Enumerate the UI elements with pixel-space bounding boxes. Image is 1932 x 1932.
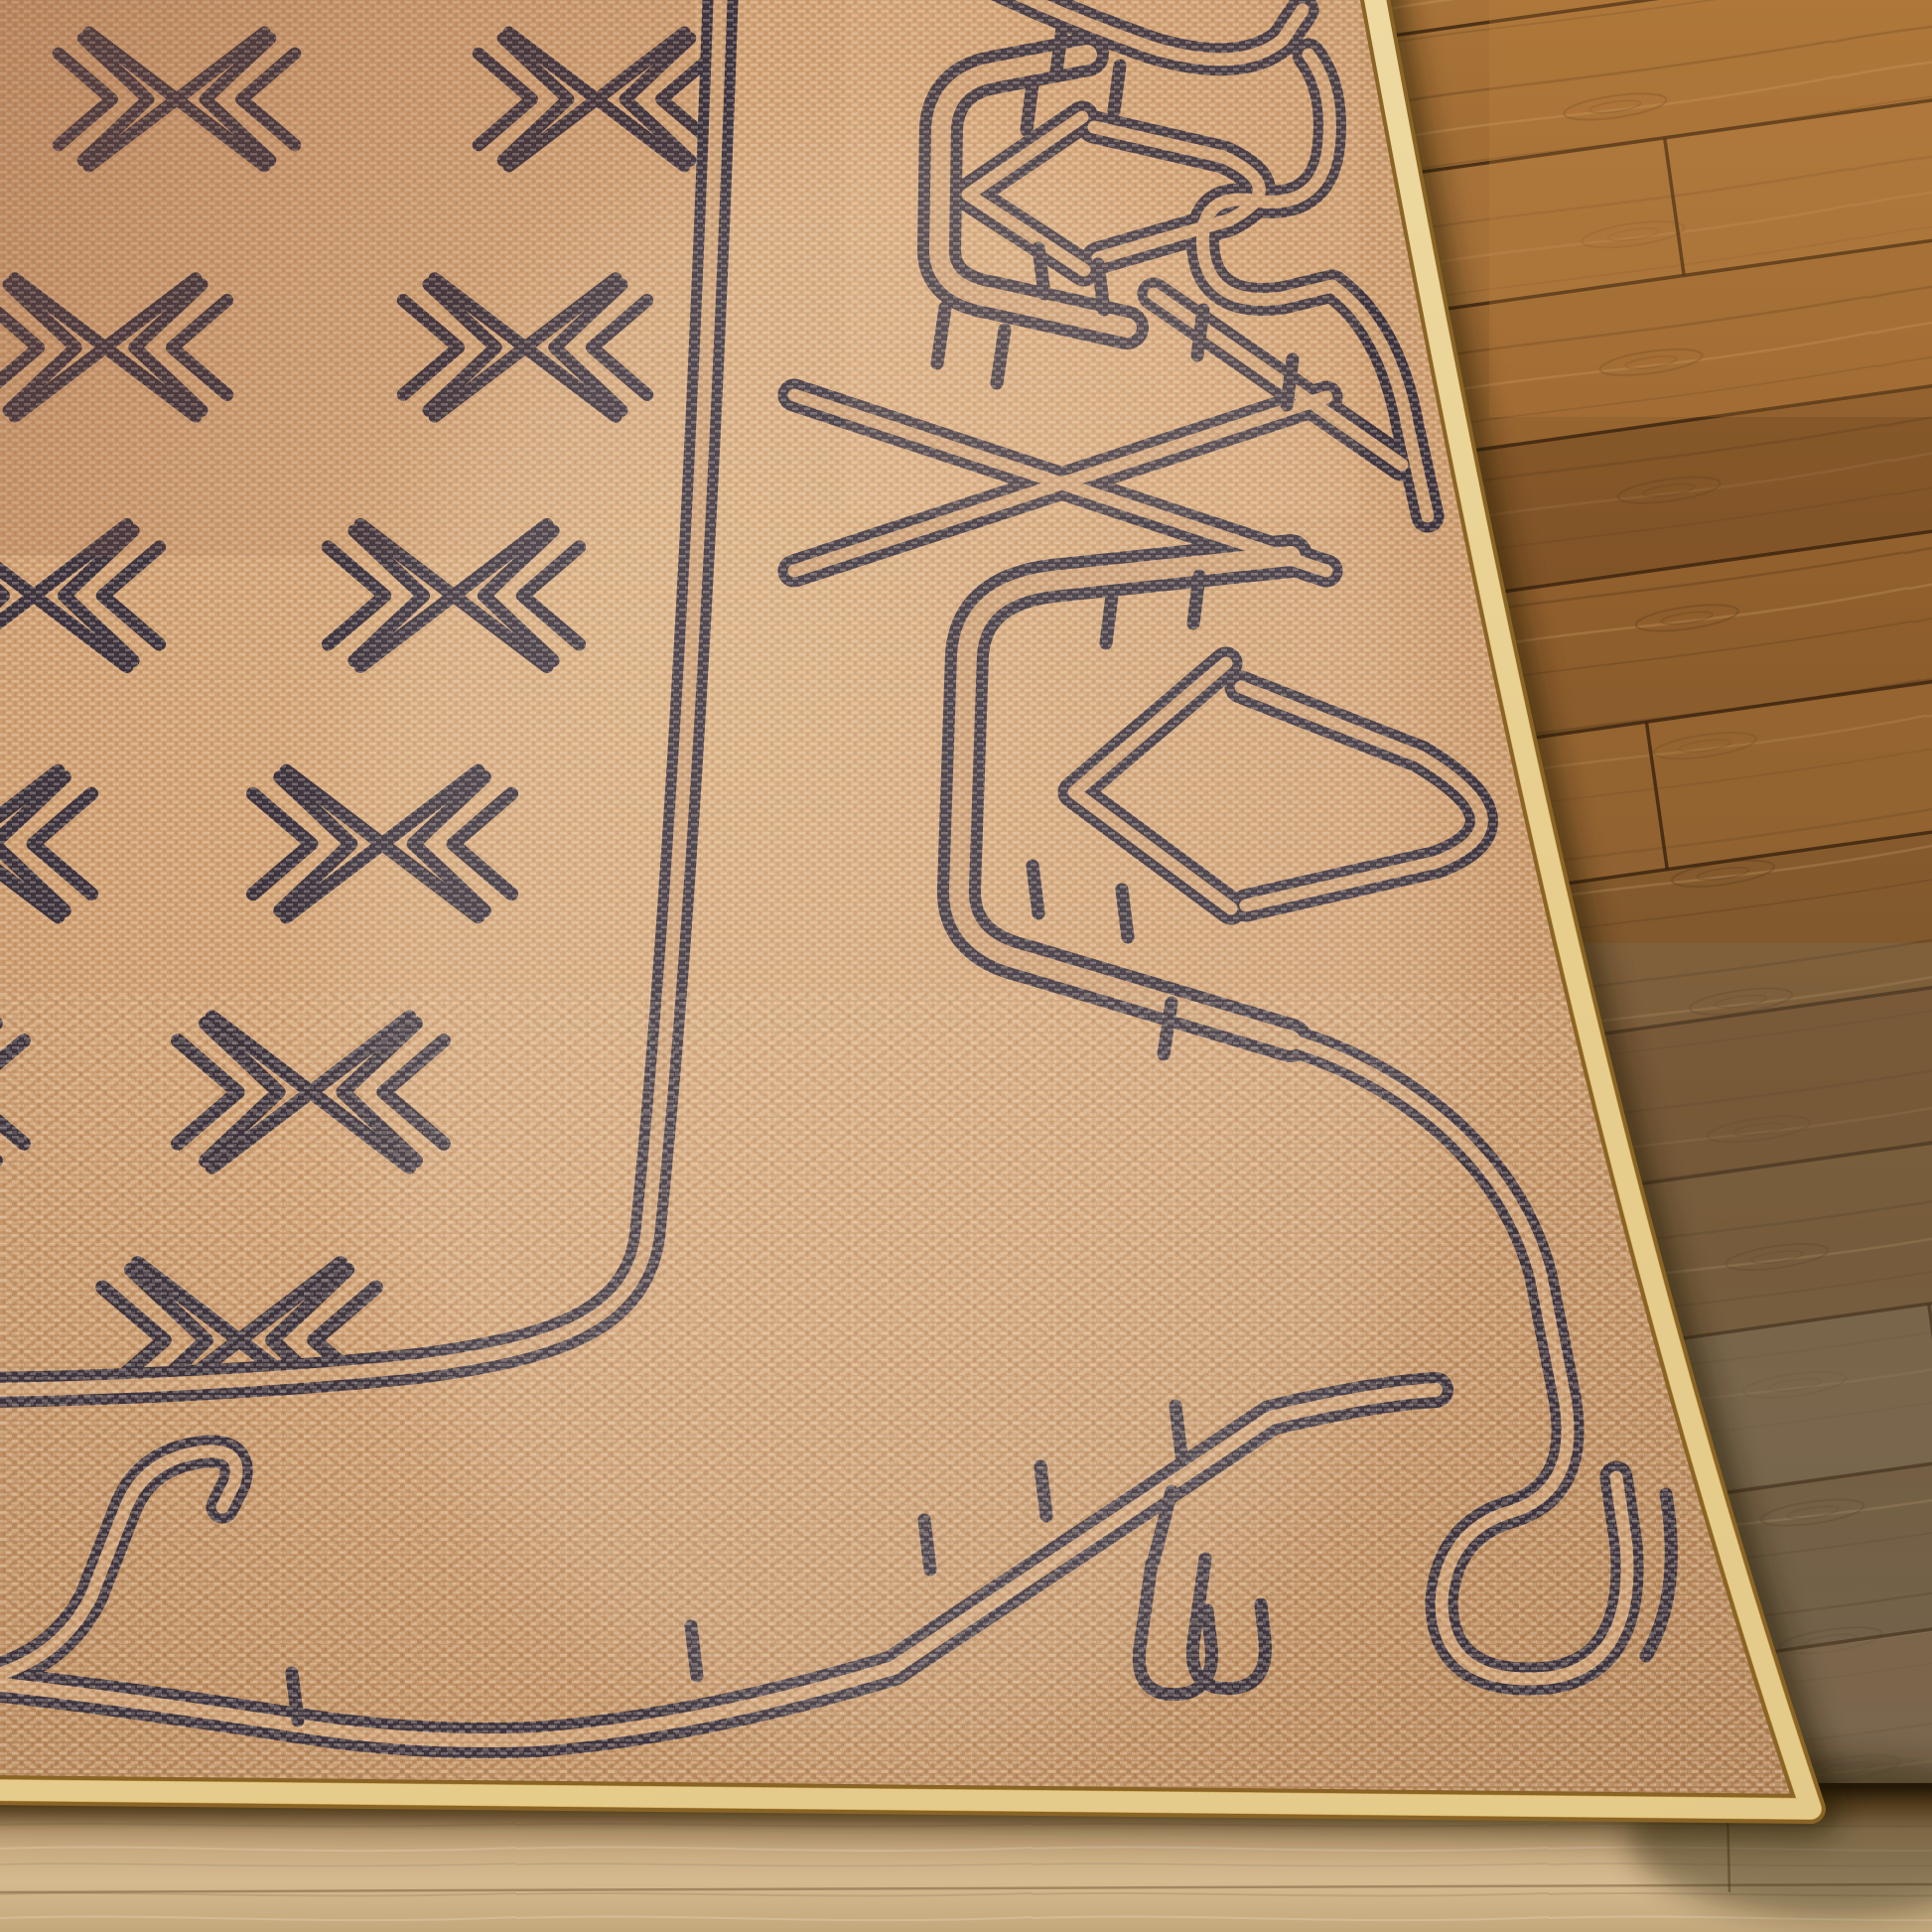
scene-svg xyxy=(0,0,1932,1932)
top-glow xyxy=(844,0,1360,516)
wood-warm-highlight xyxy=(1489,0,1932,417)
product-photo-rug-on-wood-floor xyxy=(0,0,1932,1932)
